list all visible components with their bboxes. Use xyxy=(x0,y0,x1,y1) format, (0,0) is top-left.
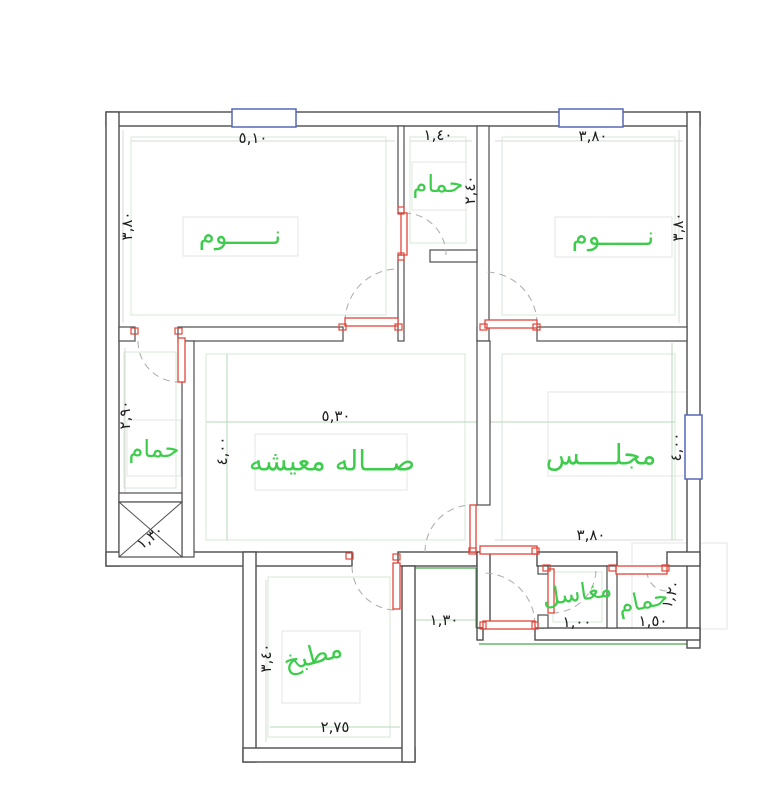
dim-bath-top-depth: ٢,٤٠ xyxy=(461,176,479,205)
wall-strip-top-a xyxy=(537,552,617,566)
door-bedroom-right xyxy=(485,320,537,328)
wall-strip-top-b xyxy=(667,552,700,566)
door-bath-top xyxy=(401,213,407,255)
dim-bedroom-right-depth: ٣,٨٠ xyxy=(669,213,687,242)
room-label-bath-top: حمام xyxy=(413,170,464,198)
wall-sinks-left-b xyxy=(538,615,548,628)
dim-bedroom-right-width: ٣,٨٠ xyxy=(579,127,608,145)
wall-bottom-main-right xyxy=(398,552,477,566)
dim-bedroom-left-width: ٥,١٠ xyxy=(239,129,268,147)
dim-majlis-width: ٣,٨٠ xyxy=(577,526,606,544)
door-hall xyxy=(480,546,537,554)
room-label-bath-left: حمام xyxy=(129,435,180,463)
window-top-right xyxy=(559,109,623,127)
dim-living-width: ٥,٣٠ xyxy=(322,407,351,425)
wall-right xyxy=(687,112,700,648)
door-bedroom-left xyxy=(345,318,398,326)
door-kitchen xyxy=(393,563,400,609)
dim-living-depth: ٤,٠٠ xyxy=(213,437,231,466)
dim-sinks-width: ١,٠٠ xyxy=(563,613,592,631)
wall-kitchen-left xyxy=(243,552,256,762)
wall-bathtop-left-a xyxy=(398,126,404,213)
arc-entry-door xyxy=(483,573,535,625)
arc-bath-left xyxy=(138,341,181,382)
windows xyxy=(232,109,702,479)
dim-bedroom-left-depth: ٣,٨٠ xyxy=(118,212,136,241)
arc-bedroom-right xyxy=(485,272,537,324)
window-right xyxy=(685,415,702,479)
wall-hall-left xyxy=(477,552,490,628)
wall-left xyxy=(106,112,119,566)
wall-strip-bottom-a xyxy=(477,628,483,640)
wall-divider-d xyxy=(537,327,687,341)
room-label-bedroom-left: نــــــوم xyxy=(199,221,281,251)
wall-living-majlis xyxy=(477,341,490,505)
wall-bathtop-left-b xyxy=(398,255,404,341)
room-label-living-hall: صـــاله معيشه xyxy=(249,445,415,478)
wall-kitchen-bottom xyxy=(243,748,415,762)
arc-majlis-door xyxy=(425,505,473,552)
dim-majlis-depth: ٤,٠٠ xyxy=(667,433,685,462)
dim-corridor-width: ١,٣٠ xyxy=(430,611,459,629)
window-top-left xyxy=(232,109,296,127)
wall-bathtop-right xyxy=(477,126,489,341)
arc-kitchen-door xyxy=(352,566,396,610)
walls xyxy=(106,112,700,762)
room-label-bedroom-right: نــــــوم xyxy=(572,222,654,252)
dim-kitchen-width: ٢,٧٥ xyxy=(321,718,350,736)
room-label-majlis: مجلــــس xyxy=(546,439,657,472)
door-majlis xyxy=(470,505,476,552)
dim-bath-top-width: ١,٤٠ xyxy=(424,126,453,144)
wall-bath-shaft xyxy=(119,493,182,502)
door-bath-bottom xyxy=(616,566,667,574)
door-entry xyxy=(483,621,535,629)
floor-plan-canvas: نــــــوم حمام نــــــوم صـــاله معيشه م… xyxy=(0,0,782,800)
wall-kitchen-right xyxy=(402,566,415,762)
door-bath-left xyxy=(178,338,185,382)
wall-bathtop-bottom xyxy=(430,250,477,262)
arc-bedroom-left xyxy=(345,269,398,322)
dim-bath-left-depth: ٢,٩٠ xyxy=(116,401,134,430)
dim-bath-bottom-width: ١,٥٠ xyxy=(639,612,668,630)
wall-divider-b xyxy=(178,327,343,341)
wall-strip-bottom-b xyxy=(535,628,700,640)
dim-kitchen-depth: ٣,٤٠ xyxy=(257,644,275,673)
